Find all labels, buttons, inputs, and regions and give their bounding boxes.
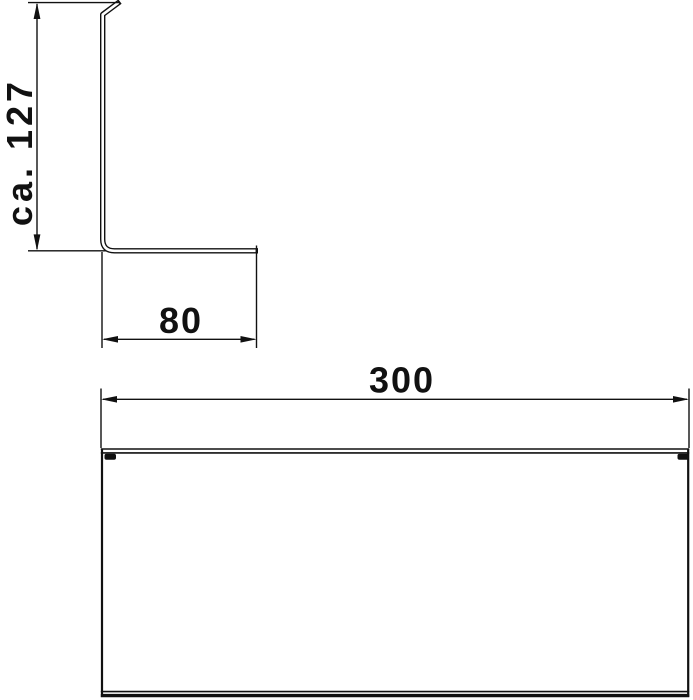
width-dimension-label: 300 (369, 360, 435, 401)
arrow-down-icon (34, 234, 41, 250)
mounting-clip-right (678, 454, 690, 460)
side-profile-view (103, 2, 258, 251)
mounting-clip-left (105, 454, 117, 460)
arrow-left-icon (102, 336, 118, 343)
height-dimension-label: ca. 127 (0, 78, 40, 226)
arrow-right-icon (673, 396, 689, 403)
depth-dimension-label: 80 (159, 300, 203, 341)
drawing-area: ca. 127 80 300 (0, 0, 693, 700)
profile-outline-inner (103, 3, 256, 251)
page: { "drawing": { "colors": { "line": "#111… (0, 0, 693, 700)
technical-drawing-canvas: ca. 127 80 300 (0, 0, 693, 700)
arrow-up-icon (34, 3, 41, 19)
arrow-right-icon (241, 336, 257, 343)
depth-dimension: 80 (102, 246, 257, 349)
front-view (101, 449, 689, 697)
width-dimension: 300 (101, 360, 689, 449)
arrow-left-icon (101, 396, 117, 403)
profile-outline (103, 2, 258, 251)
